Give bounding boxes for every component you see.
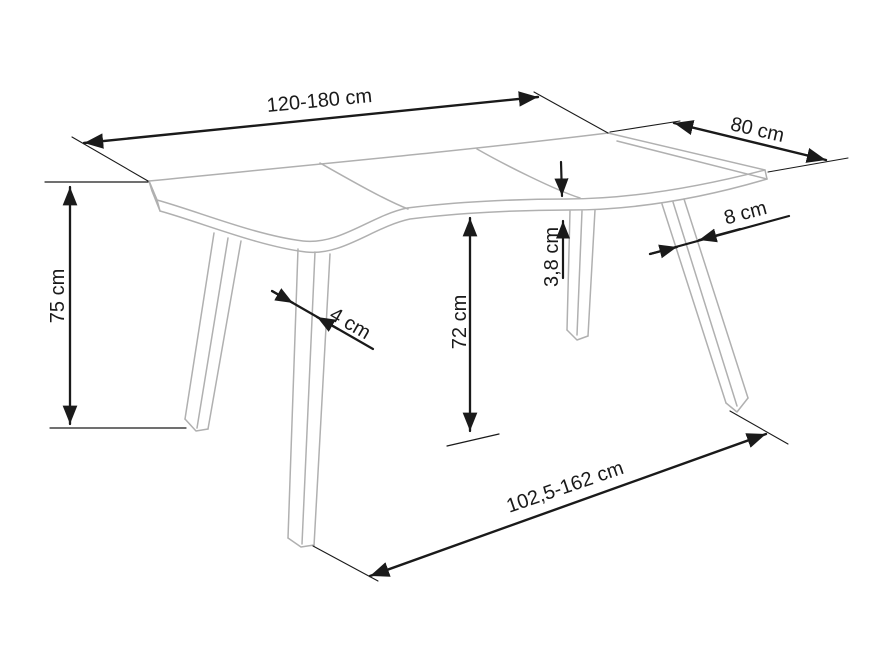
leg-edge (662, 204, 726, 403)
label-height: 75 cm (47, 269, 69, 323)
dimension-side-leg-width (650, 216, 789, 254)
leg-foot (288, 538, 314, 547)
leg-edge (208, 241, 241, 429)
arrow-from-above (561, 162, 562, 196)
tabletop-surface (149, 133, 765, 241)
dimension-drawing-canvas: 120-180 cm 80 cm 75 cm 72 cm 3,8 cm 4 cm… (0, 0, 896, 672)
extension-line (534, 92, 608, 133)
table-leg-rear-right (567, 210, 595, 340)
label-top-depth: 80 cm (728, 113, 786, 147)
table-leg-front-left (288, 249, 330, 547)
arrow-left (650, 247, 677, 254)
dimension-arrow-line (370, 434, 766, 576)
leg-edge (185, 233, 214, 419)
extension-line (610, 121, 680, 132)
extension-line (313, 546, 378, 581)
label-clearance: 72 cm (449, 295, 471, 349)
label-front-leg-width: 4 cm (326, 303, 375, 344)
leg-edge (577, 211, 582, 335)
leg-edge (567, 211, 570, 330)
label-bottom-span: 102,5-162 cm (504, 457, 627, 518)
label-thickness: 3,8 cm (541, 227, 563, 287)
extension-line (768, 158, 848, 172)
leg-edge (288, 249, 298, 538)
table-dimension-diagram: 120-180 cm 80 cm 75 cm 72 cm 3,8 cm 4 cm… (0, 0, 896, 672)
floor-tick (447, 434, 499, 446)
leg-edge (314, 254, 330, 546)
tabletop-right-end (765, 170, 767, 179)
label-side-leg-width: 8 cm (722, 197, 770, 229)
arrow-right (699, 229, 740, 240)
leg-edge (302, 252, 315, 544)
leg-edge (588, 210, 595, 336)
table-leg-rear-left (185, 233, 241, 431)
label-top-length: 120-180 cm (266, 85, 373, 117)
arrow-left (272, 291, 293, 303)
leg-foot (185, 419, 208, 431)
extension-line (730, 411, 788, 444)
